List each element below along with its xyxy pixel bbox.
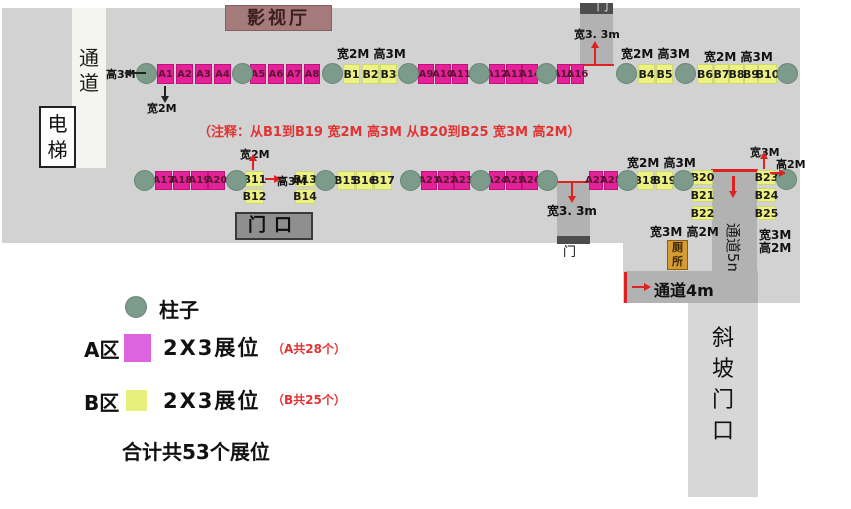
legend-pillar-icon	[125, 296, 147, 318]
dim-height3m-row1: 高3M	[106, 66, 136, 82]
booth-B6: B6	[697, 64, 713, 84]
arrow-up-b23-head-icon	[760, 152, 768, 159]
booth-A18: A18	[173, 171, 190, 190]
legend-pillar-label: 柱子	[159, 294, 199, 323]
booth-A28: A28	[604, 171, 618, 190]
legend-zone-a-count: （A共28个）	[272, 340, 346, 357]
arrow-left-row1-head-icon	[124, 69, 131, 77]
dim-width2m-a1: 宽2M	[147, 100, 177, 116]
pillar-icon	[315, 170, 336, 191]
booth-B14: B14	[295, 189, 315, 204]
pillar-icon	[675, 63, 696, 84]
booth-B21: B21	[692, 188, 713, 202]
booth-B5: B5	[656, 64, 673, 84]
note-text: （注释：从B1到B19 宽2M 高3M 从B20到B25 宽3M 高2M）	[198, 121, 581, 140]
dim-b6-b10: 宽2M 高3M	[704, 48, 773, 65]
booth-A17: A17	[155, 171, 172, 190]
booth-B22: B22	[692, 206, 713, 220]
booth-A4: A4	[214, 64, 231, 84]
pillar-icon	[226, 170, 247, 191]
booth-A26: A26	[522, 171, 538, 190]
legend-zone-a-swatch-icon	[124, 334, 151, 362]
legend-zone-b-label: B区	[84, 387, 119, 416]
legend-zone-a-booth: 2X3展位	[163, 332, 260, 362]
arrow-left-row1-icon	[131, 72, 146, 74]
booth-A8: A8	[304, 64, 320, 84]
booth-B2: B2	[362, 64, 379, 84]
pillar-icon	[470, 170, 491, 191]
arrow-up-b11-icon	[252, 160, 254, 170]
legend-total: 合计共53个展位	[122, 436, 270, 465]
legend-zone-b-booth: 2X3展位	[163, 385, 260, 415]
booth-A6: A6	[268, 64, 284, 84]
pillar-icon	[134, 170, 155, 191]
booth-B25: B25	[757, 206, 776, 220]
arrow-up-b23-icon	[763, 158, 765, 169]
dim-b18-b19: 宽2M 高3M	[627, 154, 696, 171]
booth-B18: B18	[637, 171, 654, 190]
booth-A3: A3	[195, 64, 212, 84]
arrow-up-b11-head-icon	[249, 154, 257, 161]
booth-A2: A2	[176, 64, 193, 84]
pillar-icon	[537, 170, 558, 191]
booth-B4: B4	[638, 64, 655, 84]
legend-zone-a-label: A区	[84, 334, 119, 363]
legend-zone-b-swatch-icon	[126, 390, 147, 411]
booth-B17: B17	[374, 171, 392, 190]
booth-B19: B19	[656, 171, 673, 190]
arrow-right-b23-head-icon	[779, 169, 786, 177]
pillar-icon	[469, 63, 490, 84]
booth-A23: A23	[454, 171, 470, 190]
booth-B8: B8	[729, 64, 744, 84]
booth-A11: A11	[452, 64, 468, 84]
pillar-icon	[673, 170, 694, 191]
dim-b20-b22: 宽3M 高2M	[650, 223, 719, 240]
pillar-icon	[617, 170, 638, 191]
booth-A7: A7	[286, 64, 302, 84]
booth-B24: B24	[757, 188, 776, 202]
pillar-icon	[536, 63, 557, 84]
floor-plan: 通 道 电 梯 影视厅 门 宽3. 3m 门 宽3. 3m 通道5m 通道4m …	[0, 0, 851, 509]
dim-b4-b5: 宽2M 高3M	[621, 45, 690, 62]
booth-B12: B12	[245, 189, 264, 204]
pillar-icon	[398, 63, 419, 84]
legend-zone-b-count: （B共25个）	[272, 391, 346, 408]
booth-A1: A1	[157, 64, 174, 84]
booth-B3: B3	[380, 64, 397, 84]
booth-A20: A20	[208, 171, 225, 190]
dim-height3m-b11: 高3M	[277, 173, 307, 189]
pillar-icon	[616, 63, 637, 84]
booth-B1: B1	[343, 64, 360, 84]
pillar-icon	[232, 63, 253, 84]
booth-B7: B7	[714, 64, 729, 84]
booth-B10: B10	[758, 64, 777, 84]
booth-A16: A16	[571, 64, 584, 84]
dim-b1-b3: 宽2M 高3M	[337, 45, 406, 62]
pillar-icon	[777, 63, 798, 84]
booth-B20: B20	[692, 170, 713, 185]
booth-B11: B11	[245, 171, 264, 187]
pillar-icon	[322, 63, 343, 84]
pillar-icon	[400, 170, 421, 191]
dim-height2m-b25: 高2M	[759, 239, 791, 256]
